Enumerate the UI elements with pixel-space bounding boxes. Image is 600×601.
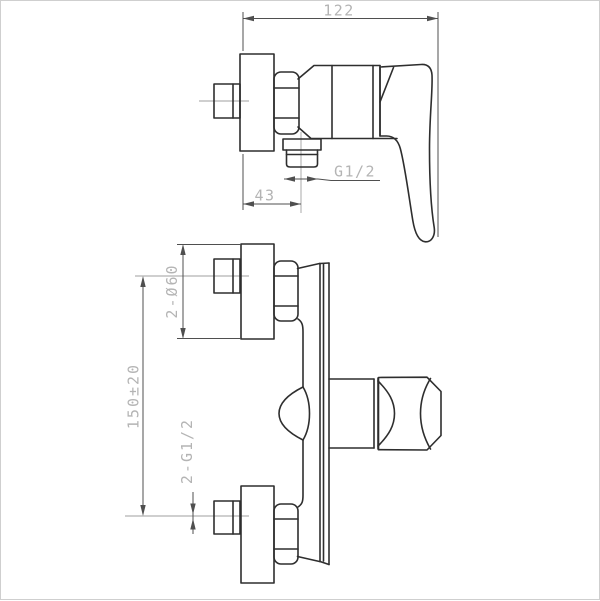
arrowhead-up <box>140 276 145 287</box>
wall-union-fitting <box>214 501 240 534</box>
dimension-label: 150±20 <box>125 363 143 429</box>
hex-nut-outline <box>274 72 299 134</box>
handle-curve-line <box>378 381 395 446</box>
handle-face-line <box>380 68 394 103</box>
outlet-step <box>283 139 321 150</box>
outlet-thread-callout: G1/2 <box>284 163 380 182</box>
handle-knob-outline <box>379 377 442 450</box>
arrowhead-right <box>427 16 438 21</box>
arrowhead-left <box>243 201 254 206</box>
silhouette-lower <box>298 440 303 507</box>
dimension-label: 2-Ø60 <box>163 263 181 318</box>
technical-drawing-page: 122 43 G1/2 <box>0 0 600 600</box>
escutcheon-flange <box>241 244 274 339</box>
lever-handle <box>380 64 434 241</box>
inlet-thread-callout: 2-G1/2 <box>178 418 196 534</box>
arrowhead-right <box>290 201 301 206</box>
thread-label: G1/2 <box>334 163 376 181</box>
bulge-left-arc <box>279 387 303 440</box>
arrowhead-left <box>243 16 254 21</box>
faucet-body <box>298 66 397 139</box>
outlet-port <box>283 139 321 167</box>
cone-edge <box>298 264 320 269</box>
plate-top-edge <box>320 263 329 264</box>
knob-curve-line <box>421 379 431 450</box>
body-top-edge <box>298 66 380 80</box>
arrowhead-right <box>307 176 318 181</box>
lower-inlet-assembly <box>214 486 320 583</box>
arrowhead-left <box>284 176 295 181</box>
hex-nut-outline <box>274 504 298 564</box>
arrowhead-down <box>180 328 185 339</box>
arrowhead-up <box>180 244 185 255</box>
bulge-right-arc <box>303 387 310 440</box>
plate-bottom-edge <box>320 562 329 565</box>
escutcheon-flange <box>241 486 274 583</box>
handle-front <box>329 377 441 450</box>
side-view: 122 43 G1/2 <box>199 2 438 242</box>
dimension-outlet-offset: 43 <box>243 154 301 210</box>
body-silhouette <box>279 319 310 507</box>
arrowhead-up <box>190 519 195 530</box>
outlet-thread <box>287 150 318 167</box>
dimension-inlet-spacing: 150±20 <box>125 276 146 516</box>
shower-mixer-drawing: 122 43 G1/2 <box>1 1 600 601</box>
hex-nut <box>274 72 299 134</box>
cone-edge <box>298 557 320 562</box>
upper-inlet-assembly <box>214 244 320 339</box>
arrowhead-down <box>190 504 195 515</box>
dimension-label: 122 <box>323 2 355 20</box>
thread-label: 2-G1/2 <box>178 418 196 484</box>
dimension-label: 43 <box>254 187 275 205</box>
lever-handle-outline <box>380 64 434 241</box>
escutcheon-flange <box>240 54 274 151</box>
hex-nut-outline <box>274 261 298 321</box>
arrowhead-down <box>140 505 145 516</box>
front-view: 150±20 2-Ø60 2-G1/2 <box>125 244 442 583</box>
leader-line <box>318 179 331 181</box>
body-plate <box>320 263 329 565</box>
silhouette-upper <box>298 319 303 387</box>
